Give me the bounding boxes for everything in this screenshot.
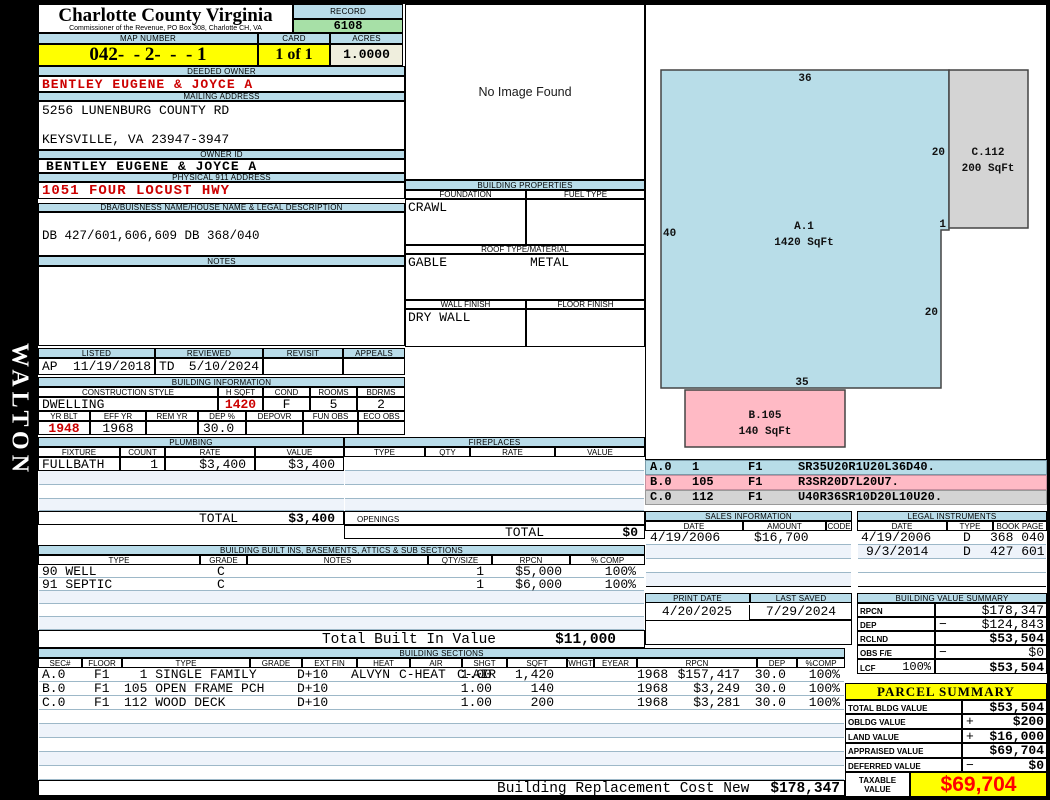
bs-eyear-label: EYEAR — [594, 658, 637, 668]
foundation-label: FOUNDATION — [405, 190, 526, 199]
print-date-label: PRINT DATE — [645, 593, 750, 603]
bs-shgt: 1.00 — [461, 668, 492, 682]
plumbing-total-label: TOTAL — [199, 512, 238, 526]
empty-row — [39, 710, 844, 724]
revisit-cell — [263, 358, 343, 375]
built-ins-total-label: Total Built In Value — [322, 632, 496, 648]
reviewed-cell: TD5/10/2024 — [155, 358, 263, 375]
legal-description-box: DB 427/601,606,609 DB 368/040 — [38, 212, 405, 256]
dim-bottom: 35 — [795, 377, 809, 389]
empty-row — [345, 499, 644, 511]
ps-value-cell: +$200 — [962, 714, 1047, 729]
ps-label-cell: LAND VALUE — [845, 729, 962, 743]
bvs-label-cell: RPCN — [857, 603, 935, 617]
reviewed-label: REVIEWED — [155, 348, 263, 358]
vector-floor: F1 — [748, 491, 798, 504]
building-section-row: A.0 F1 1 SINGLE FAMILY D+10 ALVYN C-HEAT… — [39, 668, 844, 682]
empty-row — [345, 471, 644, 485]
sale-date: 4/19/2006 — [650, 531, 720, 545]
map-number-label: MAP NUMBER — [38, 33, 258, 44]
empty-row — [39, 485, 344, 499]
plumbing-total-row: TOTAL $3,400 — [38, 511, 344, 525]
map-number-value: 042- - 2- - - 1 — [38, 44, 258, 66]
bvs-value-cell: $178,347 — [935, 603, 1047, 617]
empty-row — [39, 724, 844, 738]
section-a-sqft: 1420 SqFt — [774, 237, 833, 249]
vector-row-b: B.0 105 F1 R3SR20D7L20U7. — [645, 475, 1047, 490]
empty-row — [39, 617, 644, 630]
notes-box — [38, 266, 405, 346]
bs-grade: D+10 — [297, 682, 328, 696]
replacement-cost-value: $178,347 — [770, 781, 840, 797]
ps-label-cell: DEFERRED VALUE — [845, 758, 962, 772]
county-vertical-label: WALTON — [0, 325, 38, 495]
bs-shgt: 1.00 — [461, 682, 492, 696]
physical-address-value: 1051 FOUR LOCUST HWY — [38, 182, 405, 199]
vector-area: 105 — [692, 476, 748, 489]
reviewed-date: 5/10/2024 — [189, 360, 259, 374]
legal-description: DB 427/601,606,609 DB 368/040 — [39, 213, 404, 243]
depovr-value — [246, 421, 303, 435]
bvs-value: $0 — [1028, 646, 1044, 660]
listed-date: 11/19/2018 — [73, 360, 151, 374]
fireplaces-openings-label: OPENINGS — [357, 515, 399, 524]
plumbing-value: $3,400 — [255, 457, 344, 471]
ps-label-cell: TOTAL BLDG VALUE — [845, 700, 962, 714]
county-subtitle: Commissioner of the Revenue, PO Box 308,… — [69, 25, 262, 32]
notes-label: NOTES — [38, 256, 405, 266]
legal-instrument-row: 4/19/2006 D 368 040 — [858, 531, 1046, 545]
bdrms-label: BDRMS — [357, 387, 405, 397]
plumbing-rate-label: RATE — [165, 447, 255, 457]
built-in-comp: 100% — [605, 578, 636, 592]
remyr-label: REM YR — [146, 411, 198, 421]
acres-value: 1.0000 — [330, 44, 403, 66]
built-ins-notes-label: NOTES — [247, 555, 428, 565]
bs-sec: A.0 — [42, 668, 65, 682]
empty-row — [646, 545, 851, 559]
li-date: 4/19/2006 — [861, 531, 931, 545]
empty-row — [39, 604, 644, 617]
building-section-row: C.0 F1 112 WOOD DECK D+10 1.00 200 1968 … — [39, 696, 844, 710]
li-type: D — [963, 531, 971, 545]
taxable-value: $69,704 — [910, 772, 1047, 797]
empty-row — [39, 766, 844, 780]
bs-grade: D+10 — [297, 696, 328, 710]
plumbing-count: 1 — [120, 457, 165, 471]
fireplaces-header: FIREPLACES — [344, 437, 645, 447]
appeals-cell — [343, 358, 405, 375]
empty-row — [858, 573, 1046, 587]
bs-rpcn: $3,281 — [693, 696, 740, 710]
revisit-label: REVISIT — [263, 348, 343, 358]
depovr-label: DEPOVR — [246, 411, 303, 421]
sales-row: 4/19/2006 $16,700 — [646, 531, 851, 545]
section-b-label: B.105 — [748, 410, 781, 422]
bvs-value-cell: $53,504 — [935, 631, 1047, 645]
deeded-owner-value: BENTLEY EUGENE & JOYCE A — [38, 76, 405, 92]
funobs-value — [303, 421, 358, 435]
last-saved-label: LAST SAVED — [750, 593, 852, 603]
bs-sec: C.0 — [42, 696, 65, 710]
vector-string: SR35U20R1U20L36D40. — [798, 461, 935, 474]
bs-shgt: 1.00 — [461, 696, 492, 710]
roof-type-label: ROOF TYPE/MATERIAL — [405, 245, 645, 254]
empty-row — [39, 499, 344, 511]
bs-floor: F1 — [94, 696, 110, 710]
listed-label: LISTED — [38, 348, 155, 358]
foundation-value: CRAWL — [405, 199, 526, 245]
effyr-label: EFF YR — [90, 411, 146, 421]
fireplaces-qty-label: QTY — [425, 447, 470, 457]
built-ins-total-row: Total Built In Value $11,000 — [38, 630, 645, 648]
taxable-value-label: TAXABLE VALUE — [858, 776, 898, 794]
record-label: RECORD — [293, 4, 403, 19]
property-record-card: WALTON Charlotte County Virginia Commiss… — [0, 0, 1050, 800]
bs-whgt-label: WHGT — [567, 658, 594, 668]
ps-value-cell: −$0 — [962, 758, 1047, 772]
listed-by: AP — [42, 360, 58, 374]
bs-sec: B.0 — [42, 682, 65, 696]
bvs-label-cell: DEP — [857, 617, 935, 631]
ps-value: $16,000 — [989, 730, 1044, 744]
roof-material-value: METAL — [530, 256, 569, 270]
cond-label: COND — [263, 387, 310, 397]
vector-string: R3SR20D7L20U7. — [798, 476, 899, 489]
bs-eyear: 1968 — [637, 682, 668, 696]
owner-id-label: OWNER ID — [38, 150, 405, 159]
li-date: 9/3/2014 — [866, 545, 928, 559]
cond-value: F — [263, 397, 310, 411]
bvs-label-cell: LCF100% — [857, 659, 935, 674]
building-section-row: B.0 F1 105 OPEN FRAME PCH D+10 1.00 140 … — [39, 682, 844, 696]
bvs-value: $124,843 — [982, 618, 1044, 632]
appeals-label: APPEALS — [343, 348, 405, 358]
bs-floor: F1 — [94, 668, 110, 682]
bvs-label-cell: RCLND — [857, 631, 935, 645]
built-ins-row: 91 SEPTIC C 1 $6,000 100% — [39, 578, 644, 591]
fireplaces-openings-row: OPENINGS — [344, 511, 645, 525]
vector-area: 112 — [692, 491, 748, 504]
fireplaces-total-row: TOTAL $0 — [344, 525, 645, 539]
vector-sec: C.0 — [646, 491, 692, 504]
vector-floor: F1 — [748, 461, 798, 474]
ps-label: LAND VALUE — [848, 733, 899, 742]
sales-header: SALES INFORMATION — [645, 511, 852, 521]
ps-value-cell: +$16,000 — [962, 729, 1047, 743]
section-a-label: A.1 — [794, 221, 814, 233]
bs-heat: C-HEAT — [399, 668, 446, 682]
bs-dep: 30.0 — [755, 682, 786, 696]
yrblt-value: 1948 — [38, 421, 90, 435]
ecoobs-label: ECO OBS — [358, 411, 405, 421]
bvs-value-cell: $53,504 — [935, 659, 1047, 674]
county-header: Charlotte County Virginia Commissioner o… — [38, 4, 293, 33]
vector-area: 1 — [692, 461, 748, 474]
reviewed-by: TD — [159, 360, 175, 374]
roof-type-value: GABLE — [408, 256, 447, 270]
bvs-value: $53,504 — [989, 632, 1044, 646]
dim-left: 40 — [663, 228, 676, 240]
section-b-sqft: 140 SqFt — [739, 426, 792, 438]
card-label: CARD — [258, 33, 330, 44]
bs-dep: 30.0 — [755, 696, 786, 710]
plumbing-value-label: VALUE — [255, 447, 344, 457]
roof-values: GABLE METAL — [405, 254, 645, 300]
acres-label: ACRES — [330, 33, 403, 44]
rooms-label: ROOMS — [310, 387, 357, 397]
built-in-qty: 1 — [476, 578, 484, 592]
plumbing-header: PLUMBING — [38, 437, 344, 447]
bs-sqft: 140 — [531, 682, 554, 696]
ecoobs-value — [358, 421, 405, 435]
bvs-label: OBS F/E — [860, 649, 892, 658]
physical-address-label: PHYSICAL 911 ADDRESS — [38, 173, 405, 182]
ps-op: + — [966, 730, 974, 744]
ps-value-cell: $69,704 — [962, 743, 1047, 758]
empty-row — [345, 457, 644, 471]
floor-finish-label: FLOOR FINISH — [526, 300, 645, 309]
vector-sec: B.0 — [646, 476, 692, 489]
li-bookpage: 368 040 — [990, 531, 1045, 545]
plumbing-total-value: $3,400 — [288, 512, 335, 526]
bs-type: 1 SINGLE FAMILY — [124, 668, 257, 682]
mailing-address-box: 5256 LUNENBURG COUNTY RD KEYSVILLE, VA 2… — [38, 101, 405, 150]
remyr-value — [146, 421, 198, 435]
ps-value-cell: $53,504 — [962, 700, 1047, 714]
dep-pct-value: 30.0 — [198, 421, 246, 435]
yrblt-label: YR BLT — [38, 411, 90, 421]
plumbing-fixture: FULLBATH — [38, 457, 120, 471]
built-in-grade: C — [217, 578, 225, 592]
bs-comp: 100% — [809, 696, 840, 710]
construction-style-value: DWELLING — [38, 397, 218, 411]
bvs-label: RPCN — [860, 607, 883, 616]
county-title: Charlotte County Virginia — [58, 6, 272, 25]
sales-code-label: CODE — [826, 521, 852, 531]
bs-grade: D+10 — [297, 668, 328, 682]
fireplaces-total-label: TOTAL — [505, 526, 544, 540]
bvs-op: − — [939, 646, 947, 660]
bdrms-value: 2 — [357, 397, 405, 411]
vector-floor: F1 — [748, 476, 798, 489]
mailing-address-line1: 5256 LUNENBURG COUNTY RD — [39, 102, 404, 118]
fuel-type-value — [526, 199, 645, 245]
built-in-rpcn: $6,000 — [515, 578, 562, 592]
dba-legal-label: DBA/BUISNESS NAME/HOUSE NAME & LEGAL DES… — [38, 203, 405, 212]
empty-row — [646, 559, 851, 573]
replacement-cost-row: Building Replacement Cost New $178,347 — [38, 780, 845, 796]
hsqft-value: 1420 — [218, 397, 263, 411]
deeded-owner-label: DEEDED OWNER — [38, 66, 405, 76]
floor-finish-value — [526, 309, 645, 347]
ps-label-cell: APPRAISED VALUE — [845, 743, 962, 758]
empty-row — [39, 591, 644, 604]
bs-type: 112 WOOD DECK — [124, 696, 225, 710]
li-bookpage: 427 601-6 — [990, 545, 1046, 559]
bvs-label: DEP — [860, 621, 876, 630]
dim-upper-right: 20 — [932, 147, 945, 159]
bs-floor: F1 — [94, 682, 110, 696]
bs-grade-label: GRADE — [250, 658, 302, 668]
listed-cell: AP11/19/2018 — [38, 358, 155, 375]
taxable-value-label-cell: TAXABLE VALUE — [845, 772, 910, 797]
wall-finish-label: WALL FINISH — [405, 300, 526, 309]
vector-row-a: A.0 1 F1 SR35U20R1U20L36D40. — [645, 460, 1047, 475]
dep-pct-label: DEP % — [198, 411, 246, 421]
plumbing-fixture-label: FIXTURE — [38, 447, 120, 457]
rooms-value: 5 — [310, 397, 357, 411]
building-sketch: 36 20 40 1 20 35 A.1 1420 SqFt C.112 200… — [645, 4, 1047, 460]
li-type: D — [963, 545, 971, 559]
fireplaces-value-label: VALUE — [555, 447, 645, 457]
fuel-type-label: FUEL TYPE — [526, 190, 645, 199]
legal-instrument-row: 9/3/2014 D 427 601-6 — [858, 545, 1046, 559]
ps-value: $0 — [1028, 759, 1044, 773]
bs-eyear: 1968 — [637, 696, 668, 710]
ps-op: + — [966, 715, 974, 729]
bs-eyear: 1968 — [637, 668, 668, 682]
divider — [646, 620, 851, 621]
fireplaces-total-value: $0 — [622, 526, 638, 540]
plumbing-rate: $3,400 — [165, 457, 255, 471]
no-image-text: No Image Found — [406, 85, 644, 99]
ps-value: $200 — [1013, 715, 1044, 729]
print-date-value: 4/20/2025 — [645, 605, 750, 620]
ps-label: DEFERRED VALUE — [848, 762, 921, 771]
bs-type: 105 OPEN FRAME PCH — [124, 682, 264, 696]
ps-value: $53,504 — [989, 701, 1044, 715]
built-ins-header: BUILDING BUILT INS, BASEMENTS, ATTICS & … — [38, 545, 645, 555]
building-information-header: BUILDING INFORMATION — [38, 377, 405, 387]
building-value-summary-header: BUILDING VALUE SUMMARY — [857, 593, 1047, 603]
built-ins-total-value: $11,000 — [555, 632, 616, 648]
vector-string: U40R36SR10D20L10U20. — [798, 491, 942, 504]
dim-step: 1 — [939, 219, 946, 231]
replacement-cost-label: Building Replacement Cost New — [497, 781, 749, 797]
bs-sqft: 200 — [531, 696, 554, 710]
hsqft-label: H SQFT — [218, 387, 263, 397]
fireplaces-type-label: TYPE — [344, 447, 425, 457]
empty-row — [858, 559, 1046, 573]
legal-instruments-header: LEGAL INSTRUMENTS — [857, 511, 1047, 521]
built-in-type: 91 SEPTIC — [42, 578, 112, 592]
dim-lower-right: 20 — [925, 307, 938, 319]
building-properties-header: BUILDING PROPERTIES — [405, 180, 645, 190]
last-saved-value: 7/29/2024 — [750, 605, 852, 620]
ps-label: OBLDG VALUE — [848, 718, 906, 727]
section-c-label: C.112 — [971, 147, 1004, 159]
ps-value: $69,704 — [989, 744, 1044, 758]
bvs-value: $53,504 — [989, 661, 1044, 675]
bvs-label: LCF — [860, 664, 876, 673]
vector-row-c: C.0 112 F1 U40R36SR10D20L10U20. — [645, 490, 1047, 505]
bs-comp: 100% — [809, 682, 840, 696]
mailing-address-line2: KEYSVILLE, VA 23947-3947 — [42, 133, 229, 147]
bvs-value-cell: −$124,843 — [935, 617, 1047, 631]
building-sections-header: BUILDING SECTIONS — [38, 648, 845, 658]
empty-row — [646, 573, 851, 587]
funobs-label: FUN OBS — [303, 411, 358, 421]
sale-amount: $16,700 — [754, 531, 809, 545]
owner-id-value: BENTLEY EUGENE & JOYCE A — [38, 159, 405, 173]
bs-rpcn: $157,417 — [678, 668, 740, 682]
construction-style-label: CONSTRUCTION STYLE — [38, 387, 218, 397]
ps-label-cell: OBLDG VALUE — [845, 714, 962, 729]
bs-sqft: 1,420 — [515, 668, 554, 682]
photo-placeholder: No Image Found — [405, 4, 645, 180]
empty-row — [39, 752, 844, 766]
bvs-label-cell: OBS F/E — [857, 645, 935, 659]
bvs-label: RCLND — [860, 635, 888, 644]
ps-op: − — [966, 759, 974, 773]
section-c-sqft: 200 SqFt — [962, 163, 1015, 175]
vector-sec: A.0 — [646, 461, 692, 474]
empty-row — [345, 485, 644, 499]
bvs-lcf-pct: 100% — [902, 661, 931, 674]
bvs-value-cell: −$0 — [935, 645, 1047, 659]
bs-extfin: ALVYN — [351, 668, 390, 682]
ps-label: APPRAISED VALUE — [848, 747, 923, 756]
effyr-value: 1968 — [90, 421, 146, 435]
record-number: 6108 — [293, 19, 403, 33]
fireplaces-rate-label: RATE — [470, 447, 555, 457]
bs-rpcn: $3,249 — [693, 682, 740, 696]
parcel-summary-header: PARCEL SUMMARY — [845, 683, 1047, 700]
mailing-address-label: MAILING ADDRESS — [38, 92, 405, 101]
bvs-value: $178,347 — [982, 604, 1044, 618]
bs-dep: 30.0 — [755, 668, 786, 682]
empty-row — [39, 471, 344, 485]
plumbing-count-label: COUNT — [120, 447, 165, 457]
bvs-op: − — [939, 618, 947, 632]
bs-comp: 100% — [809, 668, 840, 682]
empty-row — [39, 738, 844, 752]
card-value: 1 of 1 — [258, 44, 330, 66]
ps-label: TOTAL BLDG VALUE — [848, 704, 927, 713]
wall-finish-value: DRY WALL — [405, 309, 526, 347]
dim-top: 36 — [798, 73, 811, 85]
